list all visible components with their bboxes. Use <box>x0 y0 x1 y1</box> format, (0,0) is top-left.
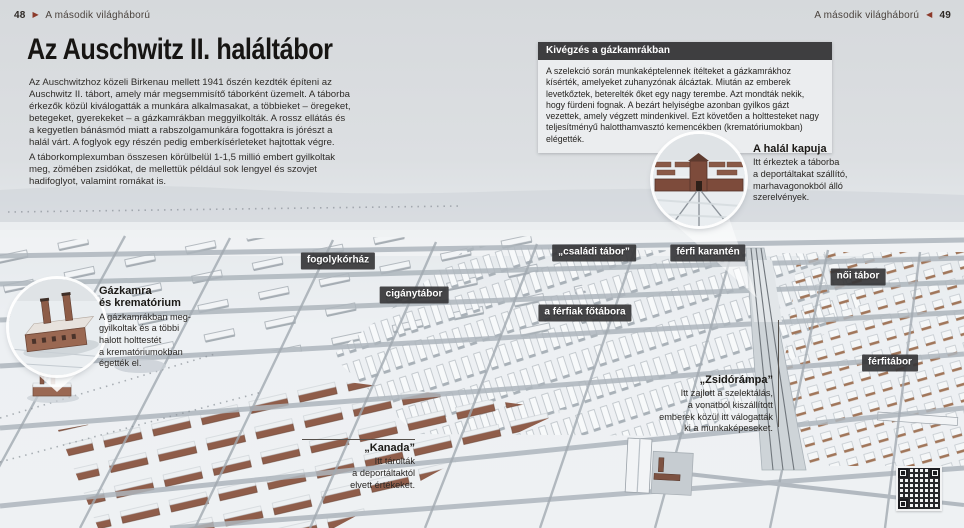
qr-code <box>896 466 942 511</box>
header-right: A második világháború ◀ 49 <box>814 10 951 21</box>
map-label-csaladi-tabor: „családi tábor” <box>552 245 636 262</box>
callout-kanada-title: „Kanada” <box>298 442 415 454</box>
callout-jewish-ramp: „Zsidórámpa” Itt zajlott a szelektálás, … <box>630 374 773 435</box>
map-label-ferfiak-fotabora: a férfiak főtábora <box>538 305 631 322</box>
callout-kanada-body: Itt tárolták a deportáltaktól elvett ért… <box>298 456 415 491</box>
qr-finder-icon <box>898 499 908 509</box>
callout-jewish-ramp-title: „Zsidórámpa” <box>630 374 773 386</box>
page-number-right: 49 <box>939 10 951 21</box>
leader-line-kanada <box>302 439 415 440</box>
callout-gas-chamber-title: Gázkamra és krematórium <box>99 285 211 310</box>
map-label-ferfi-karanten: férfi karantén <box>670 245 745 262</box>
article-paragraph-1: Az Auschwitzhoz közeli Birkenau mellett … <box>29 77 351 149</box>
qr-finder-icon <box>898 468 908 478</box>
page-number-left: 48 <box>14 10 26 21</box>
crematorium-inset-photo <box>9 279 105 375</box>
map-label-ciganytabor: cigánytábor <box>380 287 449 304</box>
book-spread: 48 ▶ A második világháború A második vil… <box>0 0 964 528</box>
back-arrow-icon: ◀ <box>926 10 932 19</box>
map-label-ferfitabor: férfitábor <box>862 355 918 372</box>
callout-jewish-ramp-body: Itt zajlott a szelektálás, a vonatból ki… <box>630 388 773 435</box>
infobox-title: Kivégzés a gázkamrákban <box>538 42 832 60</box>
death-gate-inset-photo <box>653 134 745 226</box>
map-label-noi-tabor: női tábor <box>831 269 886 286</box>
callout-gas-chamber-body: A gázkamrákban meg- gyilkoltak és a több… <box>99 312 211 370</box>
callout-death-gate: A halál kapuja Itt érkeztek a táborba a … <box>753 143 885 204</box>
chapter-title-left: A második világháború <box>45 10 150 21</box>
article-title: Az Auschwitz II. haláltábor <box>27 33 333 67</box>
map-label-fogolykorhaz: fogolykórház <box>301 253 375 270</box>
header-left: 48 ▶ A második világháború <box>14 10 150 21</box>
article-paragraph-2: A táborkomplexumban összesen körülbelül … <box>29 152 351 188</box>
chapter-title-right: A második világháború <box>814 10 919 21</box>
callout-death-gate-title: A halál kapuja <box>753 143 885 155</box>
callout-gas-chamber: Gázkamra és krematórium A gázkamrákban m… <box>99 285 211 370</box>
leader-line-jewish-ramp <box>778 320 779 427</box>
callout-death-gate-body: Itt érkeztek a táborba a deportáltakat s… <box>753 157 885 204</box>
qr-finder-icon <box>930 468 940 478</box>
callout-kanada: „Kanada” Itt tárolták a deportáltaktól e… <box>298 442 415 491</box>
forward-arrow-icon: ▶ <box>33 10 39 19</box>
